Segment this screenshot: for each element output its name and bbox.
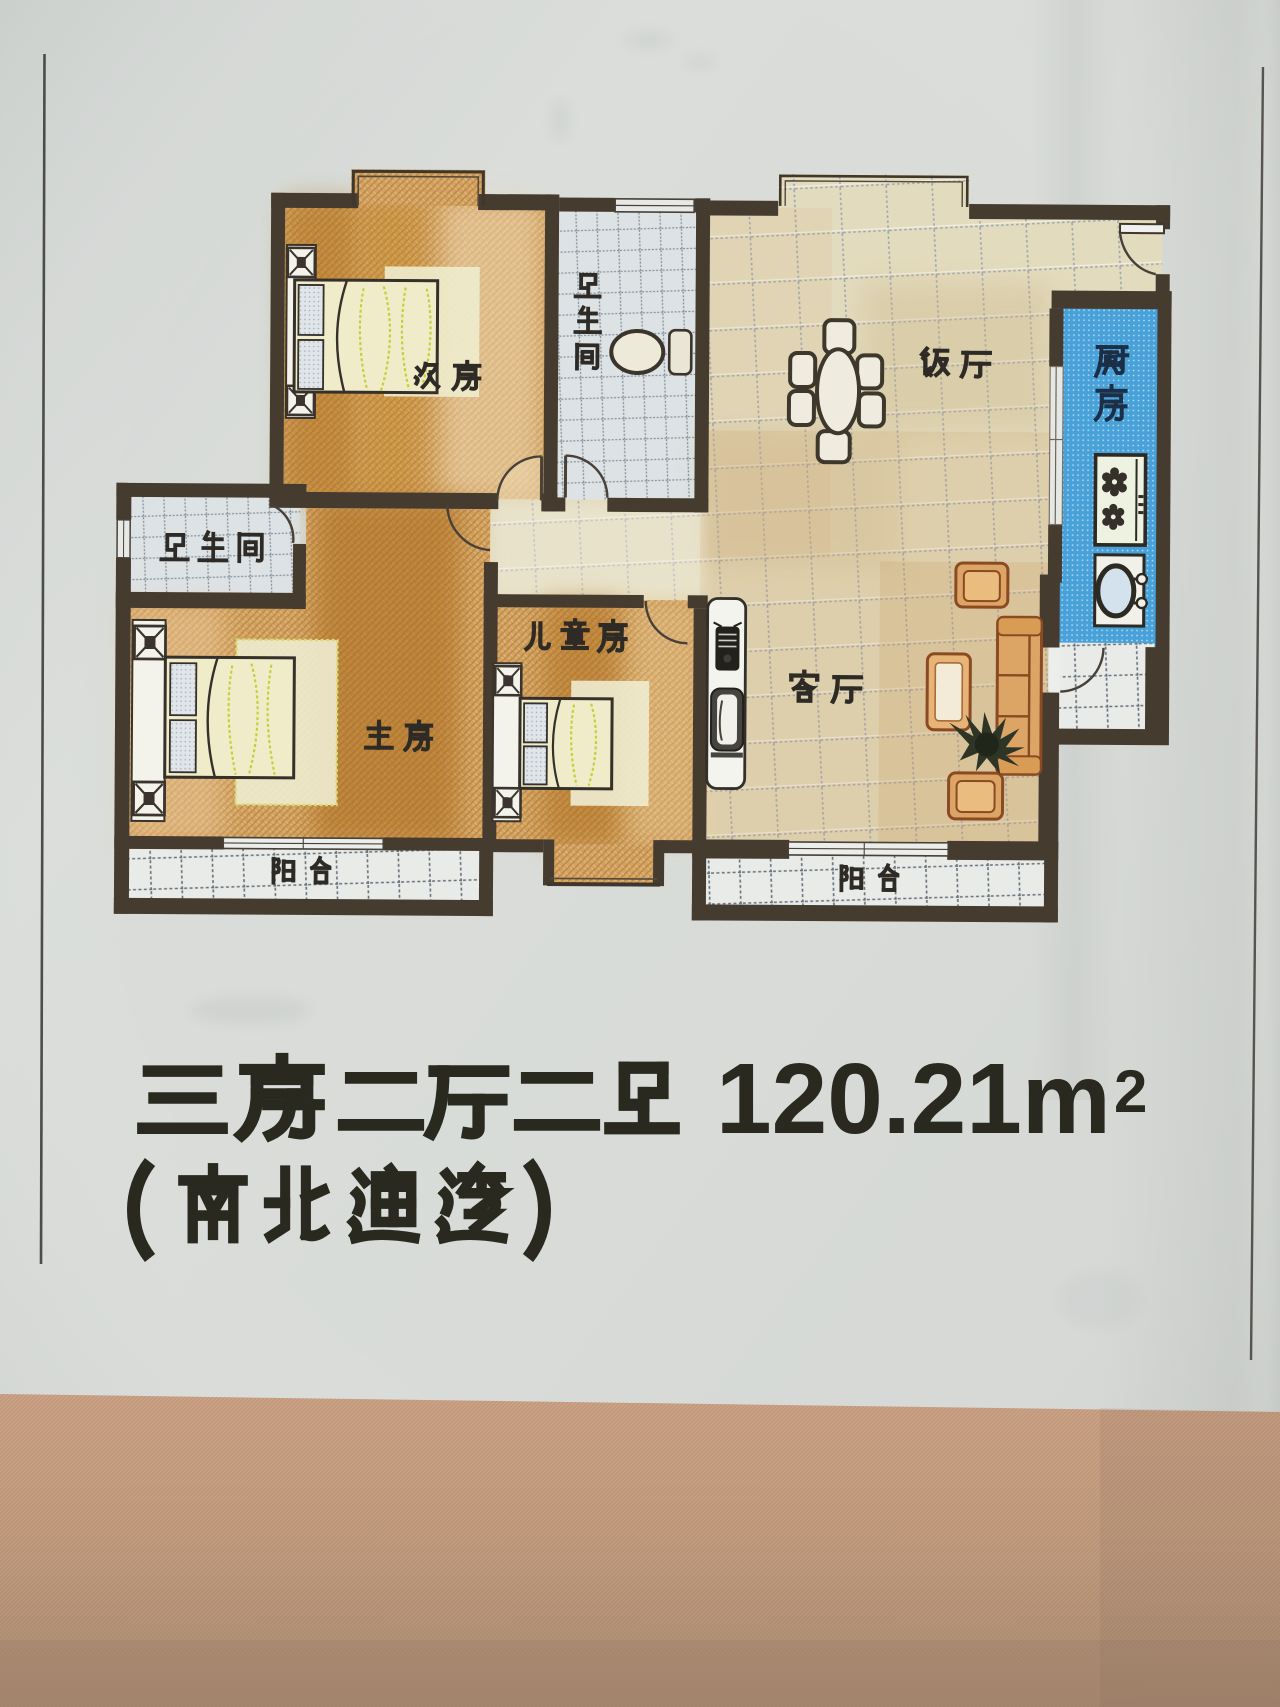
svg-text:2: 2 <box>1114 1058 1147 1125</box>
svg-text:120.21m: 120.21m <box>716 1043 1111 1155</box>
